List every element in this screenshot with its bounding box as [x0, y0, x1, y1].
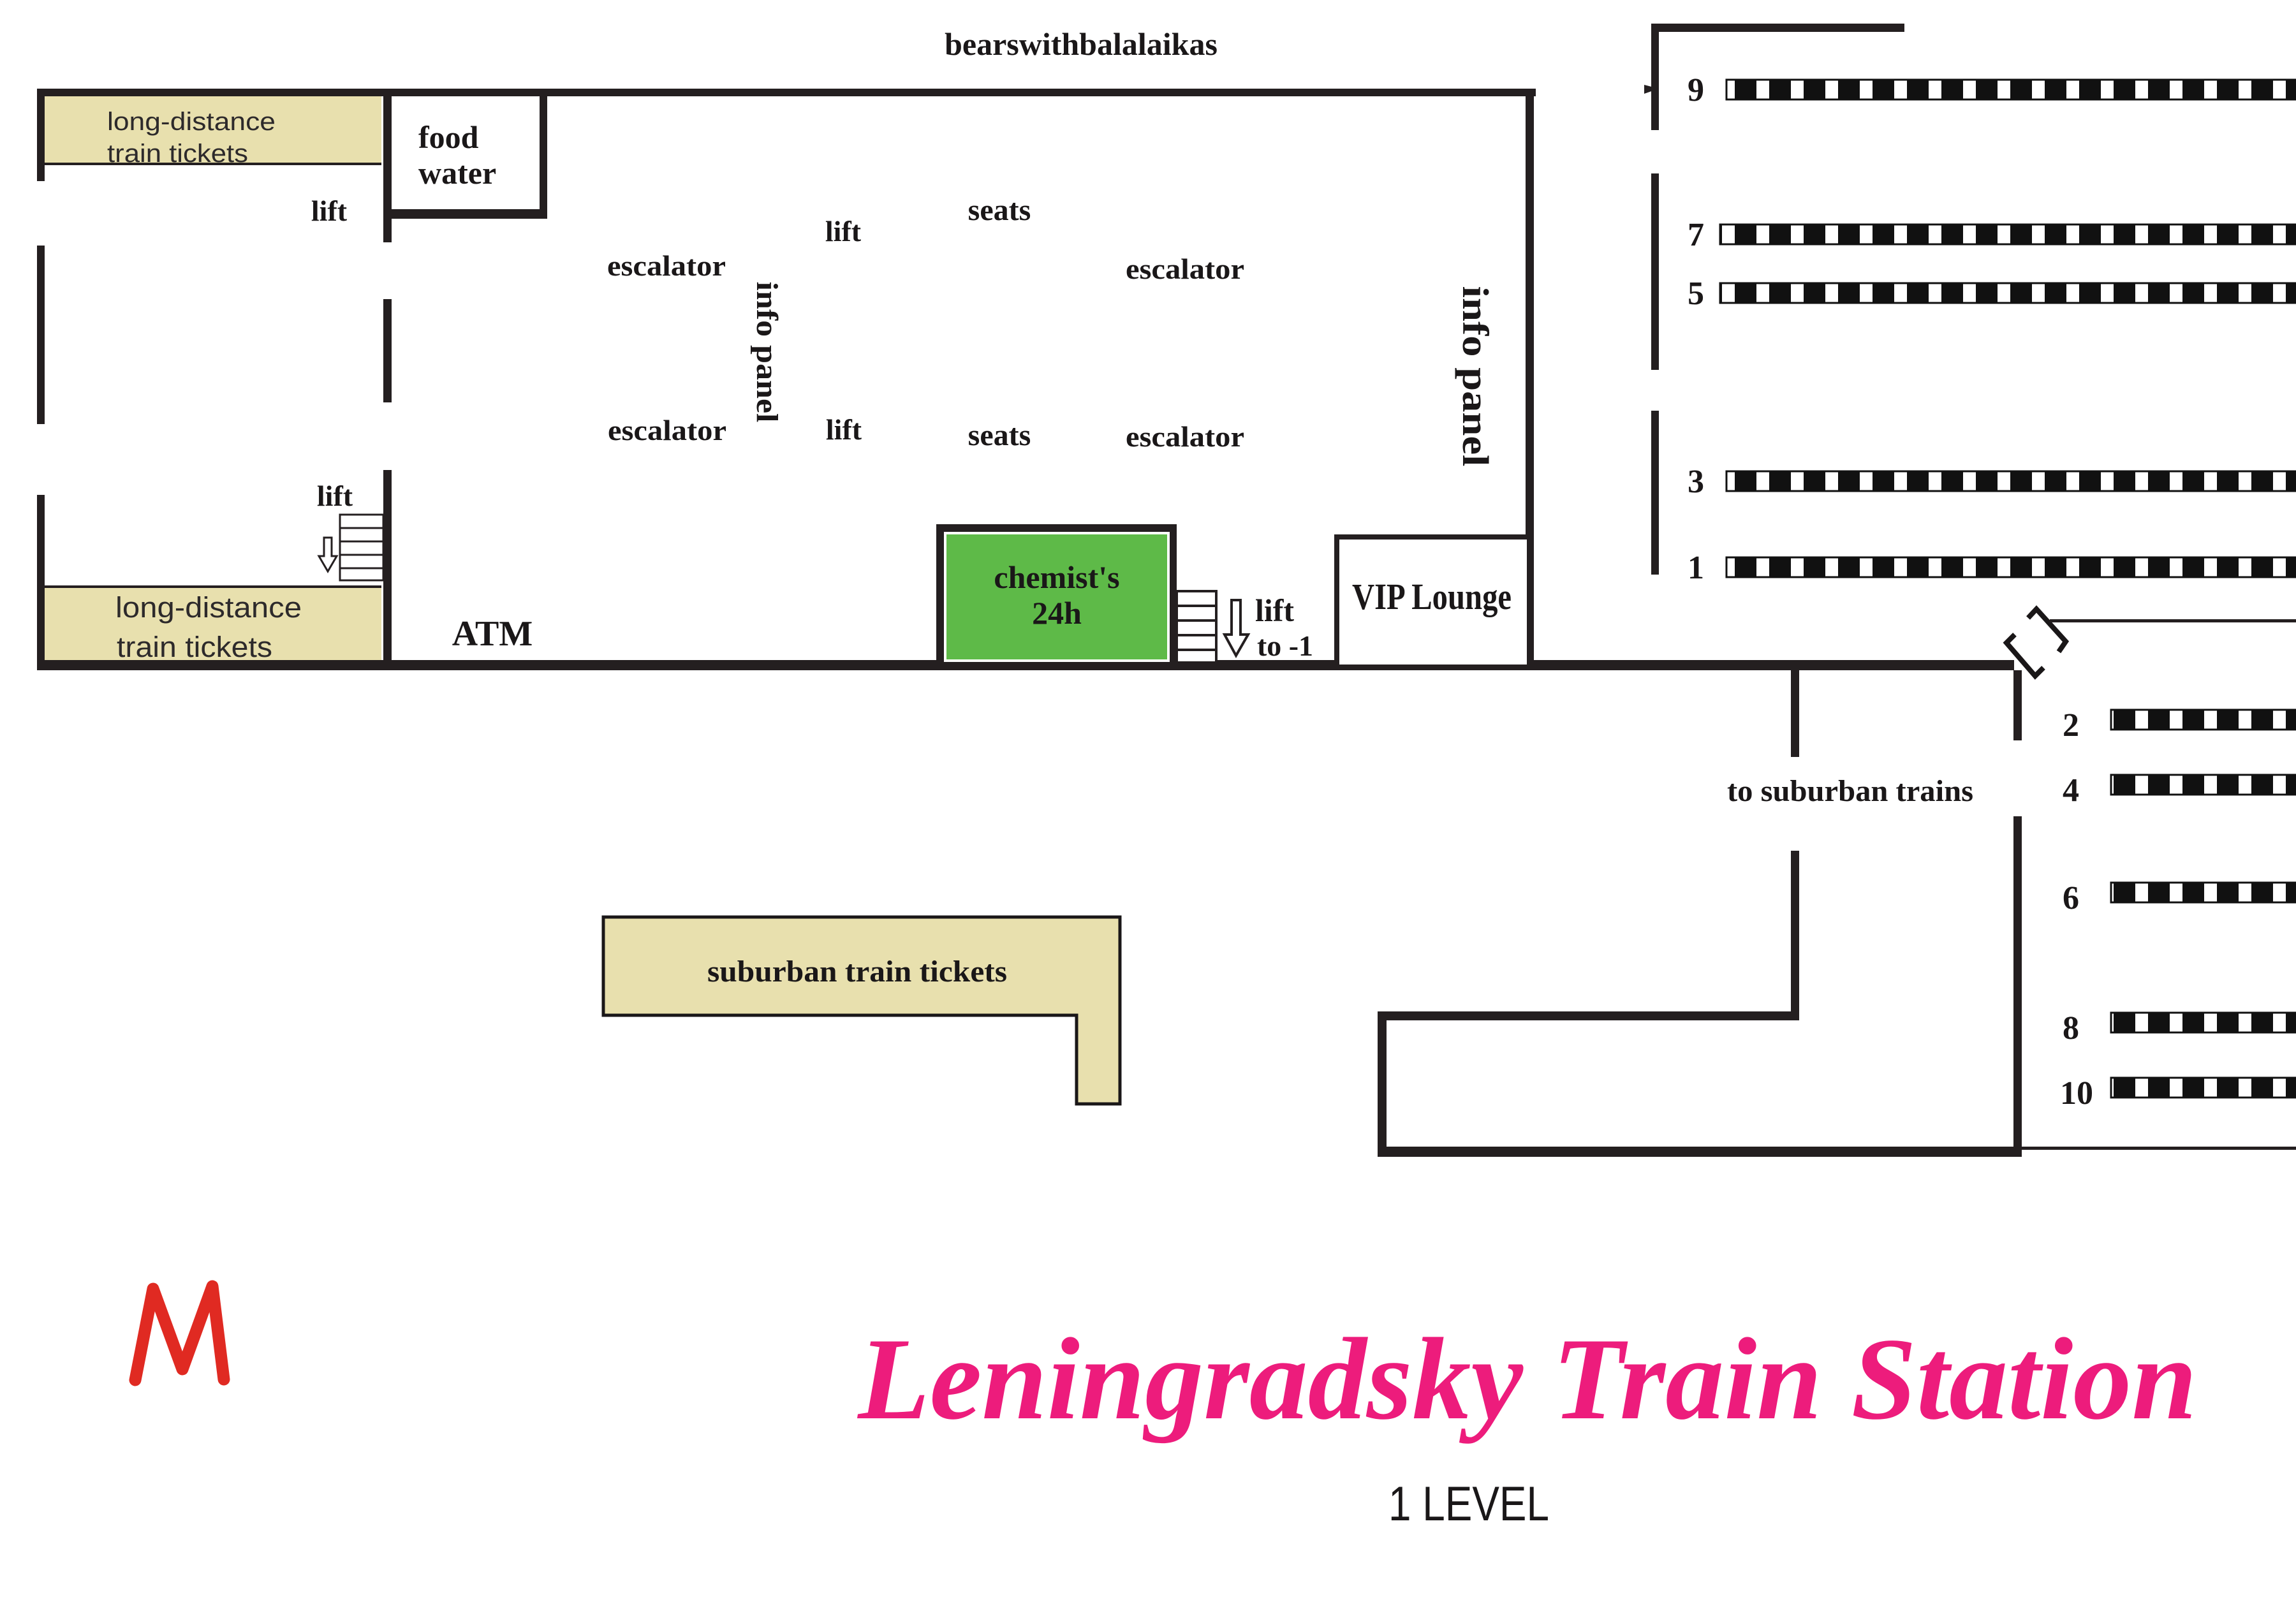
svg-text:3: 3 — [1688, 464, 1704, 500]
svg-text:lift: lift — [311, 195, 348, 227]
svg-text:ATM: ATM — [452, 614, 533, 654]
svg-text:long-distance: long-distance — [107, 108, 276, 136]
svg-text:info panel: info panel — [750, 282, 784, 423]
svg-text:10: 10 — [2060, 1075, 2093, 1112]
svg-text:escalator: escalator — [607, 249, 726, 282]
svg-text:food: food — [418, 119, 479, 155]
svg-text:escalator: escalator — [1126, 253, 1244, 285]
svg-text:info panel: info panel — [1455, 286, 1496, 467]
svg-text:chemist's: chemist's — [994, 559, 1119, 595]
svg-text:seats: seats — [968, 418, 1031, 452]
svg-text:train tickets: train tickets — [117, 631, 272, 663]
svg-text:lift: lift — [1255, 592, 1294, 628]
svg-text:lift: lift — [317, 480, 353, 512]
svg-text:bearswithbalalaikas: bearswithbalalaikas — [945, 26, 1218, 62]
svg-text:6: 6 — [2063, 880, 2079, 916]
svg-text:escalator: escalator — [1126, 420, 1244, 453]
svg-text:suburban train tickets: suburban train tickets — [707, 955, 1007, 988]
svg-text:train tickets: train tickets — [107, 140, 248, 168]
svg-text:to -1: to -1 — [1257, 629, 1313, 662]
svg-text:24h: 24h — [1032, 595, 1082, 631]
svg-text:escalator: escalator — [608, 414, 726, 446]
svg-text:1 LEVEL: 1 LEVEL — [1388, 1477, 1549, 1531]
svg-text:lift: lift — [826, 413, 862, 446]
svg-text:9: 9 — [1688, 72, 1704, 108]
svg-text:VIP Lounge: VIP Lounge — [1352, 576, 1512, 617]
svg-text:lift: lift — [825, 215, 862, 247]
svg-text:5: 5 — [1688, 275, 1704, 312]
svg-text:to suburban trains: to suburban trains — [1727, 774, 1973, 808]
svg-text:2: 2 — [2063, 707, 2079, 744]
svg-text:long-distance: long-distance — [115, 591, 302, 624]
svg-text:Leningradsky Train Station: Leningradsky Train Station — [857, 1314, 2197, 1444]
svg-text:1: 1 — [1688, 550, 1704, 586]
svg-text:8: 8 — [2063, 1010, 2079, 1047]
svg-text:seats: seats — [968, 193, 1031, 227]
svg-text:4: 4 — [2063, 772, 2079, 809]
svg-text:water: water — [418, 155, 496, 191]
svg-text:7: 7 — [1688, 217, 1704, 253]
